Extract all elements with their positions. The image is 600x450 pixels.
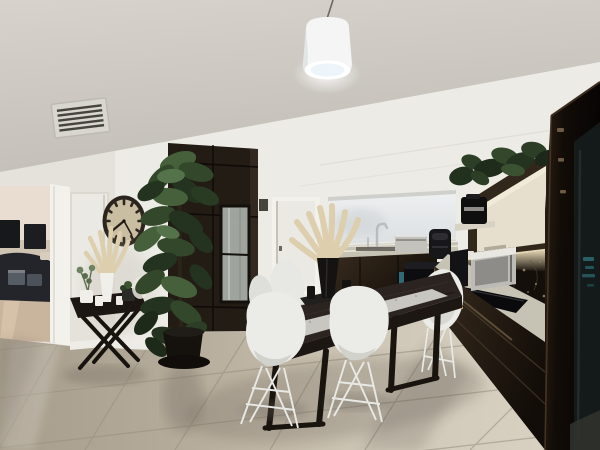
door-frame-left xyxy=(50,184,70,347)
air-vent xyxy=(51,98,110,138)
storage-bin xyxy=(27,274,42,286)
sandwich-press xyxy=(395,236,427,252)
left-room-view xyxy=(0,186,52,342)
tv-screen xyxy=(0,220,20,248)
interior-photo xyxy=(0,0,600,450)
sofa xyxy=(0,253,52,302)
candle xyxy=(116,296,123,305)
wall-plaque xyxy=(259,199,268,211)
storage-bin xyxy=(8,272,25,285)
scene-canvas xyxy=(0,0,600,450)
tv-screen xyxy=(24,224,46,249)
frosted-glass-panel xyxy=(221,206,249,302)
candle-jar xyxy=(307,286,315,299)
candle xyxy=(95,296,103,306)
door-handle xyxy=(279,246,282,251)
fridge-cabinet-column xyxy=(545,82,600,450)
coffee-machine xyxy=(461,194,487,224)
sink-edge xyxy=(356,247,400,251)
microwave xyxy=(471,247,516,291)
white-pot xyxy=(80,290,93,303)
